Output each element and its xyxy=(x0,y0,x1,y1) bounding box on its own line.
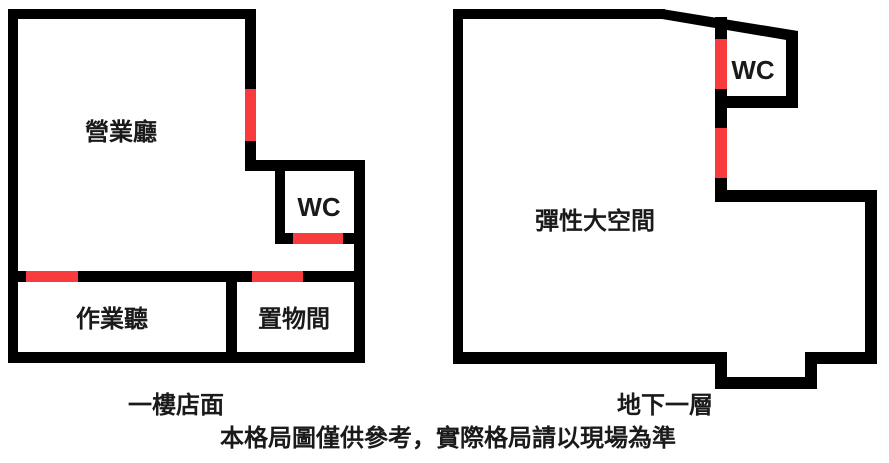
basement-walls xyxy=(453,9,877,389)
door-marker xyxy=(26,271,78,282)
wall-b1-bottom-right xyxy=(805,352,877,364)
wall-b1-bottom-left xyxy=(453,352,727,364)
wall-ff-top xyxy=(8,9,256,19)
wall-b1-mid-horizontal xyxy=(715,190,877,202)
floor-plan-page: 營業廳 WC 作業聽 置物間 一樓店面 彈性大空間 WC 地下一層 本格局圖僅供… xyxy=(0,0,889,463)
wall-b1-top xyxy=(453,9,665,19)
disclaimer-note: 本格局圖僅供參考，實際格局請以現場為準 xyxy=(220,424,676,452)
room-label-wc-basement: WC xyxy=(731,55,775,85)
room-label-wc-first-floor: WC xyxy=(297,192,341,222)
caption-basement: 地下一層 xyxy=(617,392,713,419)
door-marker xyxy=(715,128,727,178)
door-marker xyxy=(252,271,303,282)
room-label-sales-hall: 營業廳 xyxy=(85,118,157,146)
wall-ff-step-horizontal xyxy=(245,160,365,171)
wall-b1-left xyxy=(453,9,463,364)
room-label-work-room: 作業聽 xyxy=(76,306,148,333)
wall-b1-notch-bottom xyxy=(715,377,817,389)
wall-ff-left xyxy=(8,9,18,363)
wall-ff-wc-left xyxy=(275,168,285,244)
room-label-flexible-space: 彈性大空間 xyxy=(535,207,655,235)
door-marker xyxy=(245,89,256,141)
first-floor-door-markers xyxy=(26,89,343,282)
wall-b1-wc-bottom xyxy=(715,96,798,108)
room-label-storage-room: 置物間 xyxy=(258,306,330,333)
door-marker xyxy=(715,39,727,89)
wall-b1-right xyxy=(865,190,877,364)
wall-ff-bottom xyxy=(8,352,365,363)
caption-first-floor: 一樓店面 xyxy=(128,392,224,419)
floor-plan-drawing: 營業廳 WC 作業聽 置物間 一樓店面 彈性大空間 WC 地下一層 本格局圖僅供… xyxy=(0,0,889,463)
door-marker xyxy=(293,233,343,244)
wall-b1-diagonal-top xyxy=(662,9,798,42)
wall-ff-outer-right xyxy=(354,160,365,363)
wall-ff-room-divider xyxy=(226,282,237,363)
